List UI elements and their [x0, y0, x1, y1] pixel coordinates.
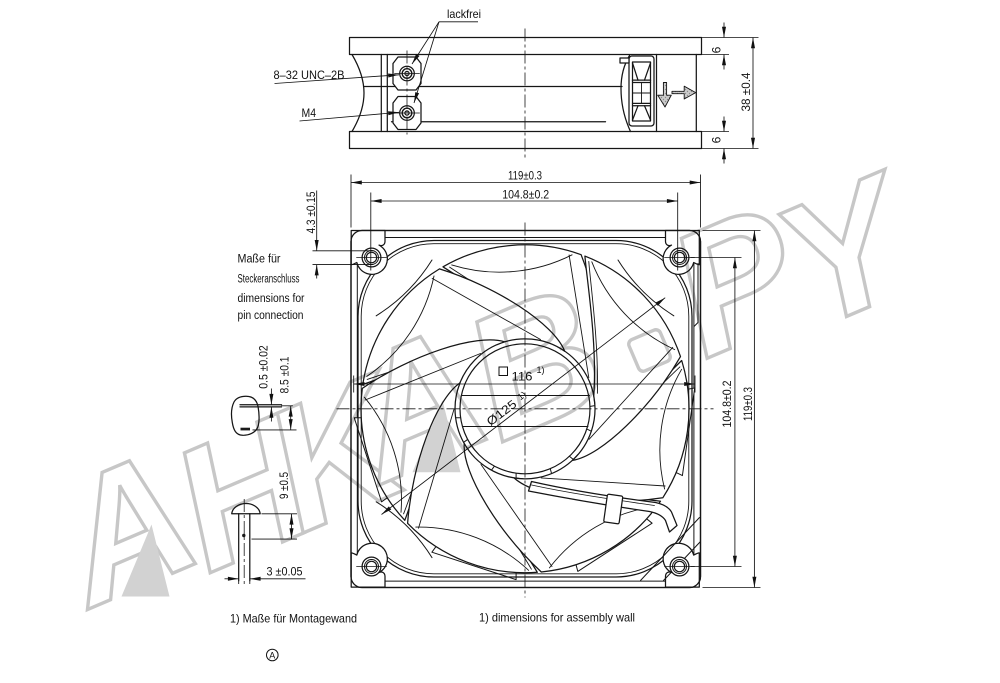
svg-text:6: 6: [710, 46, 724, 53]
svg-text:1) Maße für Montagewand: 1) Maße für Montagewand: [230, 612, 357, 626]
svg-text:38 ±0.4: 38 ±0.4: [739, 72, 753, 111]
svg-text:119±0.3: 119±0.3: [741, 387, 755, 421]
svg-text:4.3 ±0.15: 4.3 ±0.15: [304, 191, 318, 233]
svg-text:8–32 UNC–2B: 8–32 UNC–2B: [274, 68, 345, 82]
svg-text:6: 6: [710, 136, 724, 143]
svg-text:119±0.3: 119±0.3: [508, 168, 542, 182]
svg-text:Steckeranschluss: Steckeranschluss: [238, 274, 300, 286]
svg-text:dimensions for: dimensions for: [238, 293, 305, 305]
svg-text:A: A: [269, 651, 275, 661]
svg-text:1) dimensions for assembly wal: 1) dimensions for assembly wall: [479, 611, 635, 625]
svg-text:M4: M4: [302, 106, 317, 120]
svg-text:lackfrei: lackfrei: [447, 7, 481, 21]
svg-text:pin connection: pin connection: [238, 310, 304, 322]
svg-text:Maße für: Maße für: [238, 254, 281, 266]
svg-text:104.8±0.2: 104.8±0.2: [502, 188, 549, 202]
